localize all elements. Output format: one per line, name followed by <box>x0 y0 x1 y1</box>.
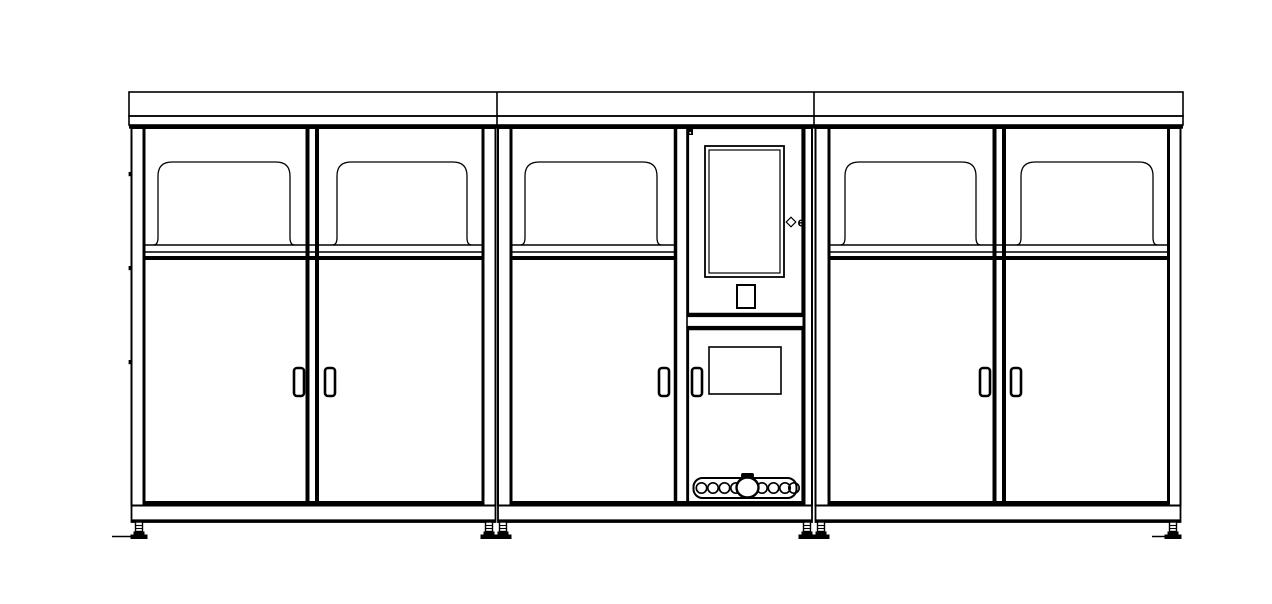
panel-door-handle <box>692 368 702 396</box>
canopy-lower-band <box>129 116 1183 125</box>
leveling-foot-stem <box>500 522 507 532</box>
leveling-foot-collar <box>802 532 813 535</box>
leveling-foot-stem <box>1170 522 1177 532</box>
touchscreen-bezel <box>705 146 784 277</box>
leveling-foot-stem <box>136 522 143 532</box>
door-handle <box>294 368 304 396</box>
leveling-foot-base <box>495 535 512 540</box>
tray-button <box>696 483 706 493</box>
bin-opening-window <box>841 162 981 245</box>
leveling-foot-collar <box>484 532 495 535</box>
leveling-foot-stem <box>486 522 493 532</box>
cad-viewport: e <box>0 0 1272 604</box>
leveling-foot-collar <box>134 532 145 535</box>
leveling-foot-base <box>813 535 830 540</box>
tray-button <box>708 483 718 493</box>
tray-center-knob <box>737 478 759 498</box>
side-marker-label: e <box>798 216 805 230</box>
leveling-foot-stem <box>804 522 811 532</box>
lock-icon <box>688 129 694 136</box>
door-handle <box>980 368 990 396</box>
bin-opening-window <box>154 162 295 245</box>
hinge-pin-icon <box>129 360 133 364</box>
lock-icon-keyhole <box>690 132 692 134</box>
canopy-upper-band <box>129 92 1183 116</box>
leveling-foot-collar <box>498 532 509 535</box>
door-handle <box>1011 368 1021 396</box>
bin-opening-window <box>1017 162 1158 245</box>
leveling-foot-collar <box>816 532 827 535</box>
leveling-foot-stem <box>818 522 825 532</box>
module-frame-right-cabinet <box>816 128 1181 506</box>
hinge-pin-icon <box>129 172 133 176</box>
hinge-pin-icon <box>129 266 133 270</box>
door-handle <box>325 368 335 396</box>
leveling-foot-collar <box>1168 532 1179 535</box>
module-frame-left-cabinet <box>132 128 496 506</box>
door-handle <box>659 368 669 396</box>
station-front-elevation-drawing: e <box>0 0 1272 604</box>
touchscreen-display <box>709 150 780 273</box>
bin-opening-window <box>521 162 662 245</box>
bin-opening-window <box>333 162 472 245</box>
diamond-indicator-icon <box>786 217 796 227</box>
tray-button <box>768 483 778 493</box>
tray-knob-tab <box>741 473 754 478</box>
tray-button <box>719 483 729 493</box>
receipt-slot <box>737 285 755 308</box>
collection-hatch-window <box>709 347 781 394</box>
